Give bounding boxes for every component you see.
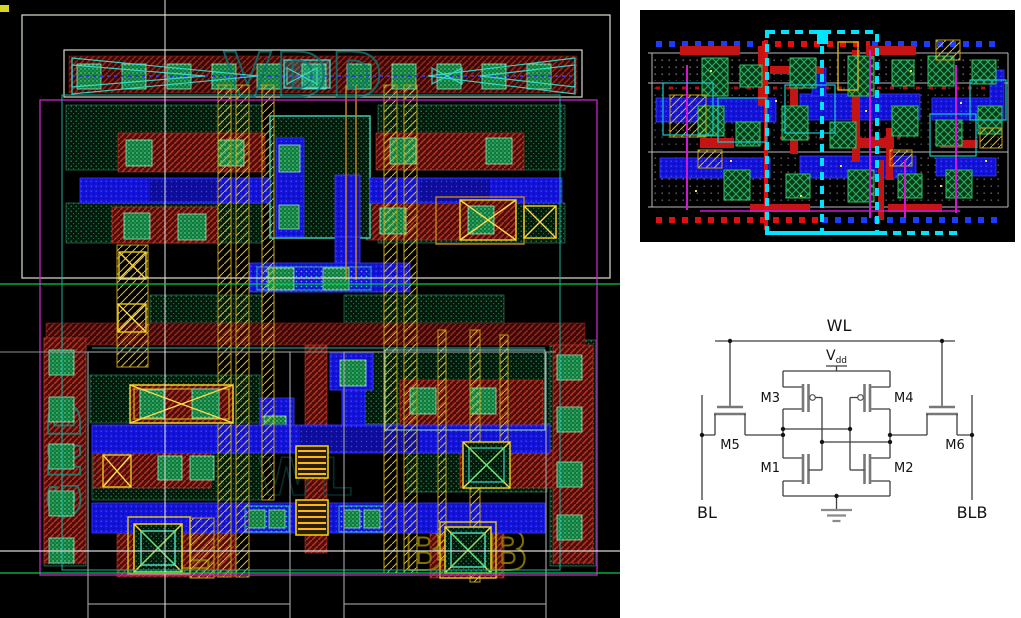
m5-label: M5 — [720, 438, 740, 453]
m4-pmos-bubble — [858, 395, 864, 401]
m4-label: M4 — [894, 391, 914, 406]
figure-canvas: VDD GND WL BL BLB — [0, 0, 1021, 618]
schematic-blb-label: BLB — [957, 503, 988, 522]
m2-label: M2 — [894, 461, 914, 476]
m3-label: M3 — [761, 391, 781, 406]
sram-cell-layout-panel: VDD GND WL BL BLB — [0, 0, 620, 618]
m6-label: M6 — [945, 438, 965, 453]
m1-label: M1 — [761, 461, 781, 476]
via-box-mid-right — [463, 442, 510, 488]
schematic-wl-label: WL — [827, 316, 852, 335]
bitline-via-left — [128, 517, 190, 574]
via-array-mid-left — [130, 385, 233, 423]
ruler-tick — [0, 5, 9, 12]
m3-pmos-bubble — [810, 395, 816, 401]
via-column-left — [117, 245, 148, 367]
schematic-bl-label: BL — [697, 503, 717, 522]
sram-schematic-panel: WL Vdd M3 M4 M5 M6 M1 M2 BL BLB — [630, 300, 1021, 560]
sram-array-overview-panel — [640, 10, 1015, 242]
